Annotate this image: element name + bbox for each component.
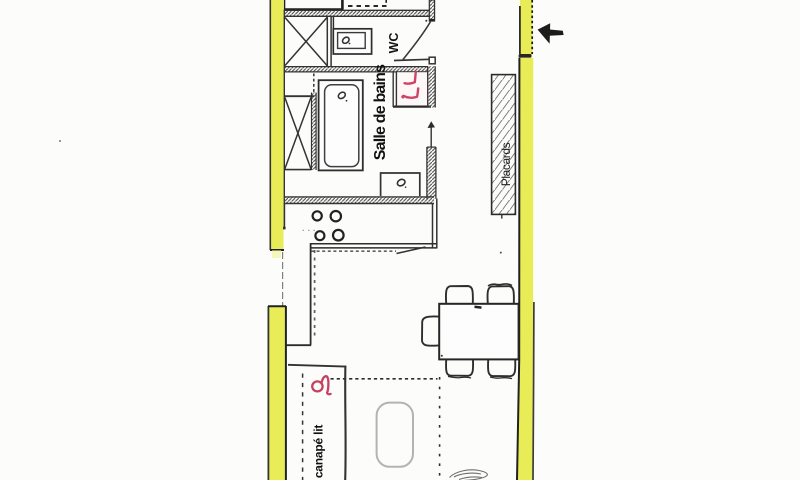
svg-text:canapé lit: canapé lit (311, 425, 325, 479)
svg-text:Placards: Placards (499, 142, 513, 186)
svg-text:WC: WC (387, 33, 401, 54)
svg-text:Salle de bains: Salle de bains (372, 64, 389, 160)
